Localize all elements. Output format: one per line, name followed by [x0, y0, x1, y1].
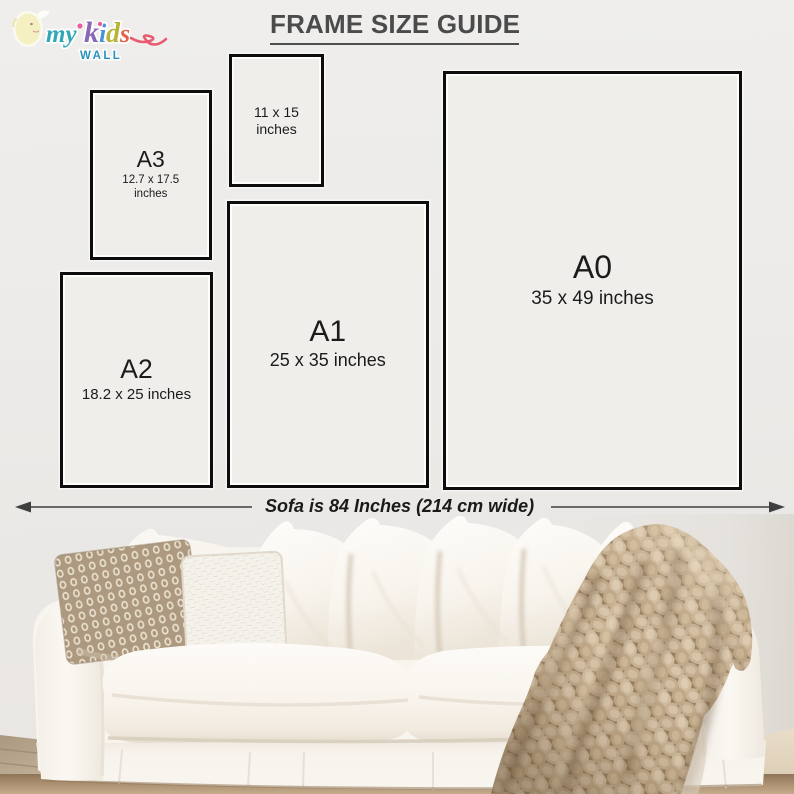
svg-text:my: my: [46, 21, 77, 48]
svg-text:WALL: WALL: [80, 50, 122, 62]
svg-text:s: s: [119, 19, 130, 48]
svg-text:d: d: [106, 18, 121, 49]
svg-text:k: k: [84, 16, 99, 49]
